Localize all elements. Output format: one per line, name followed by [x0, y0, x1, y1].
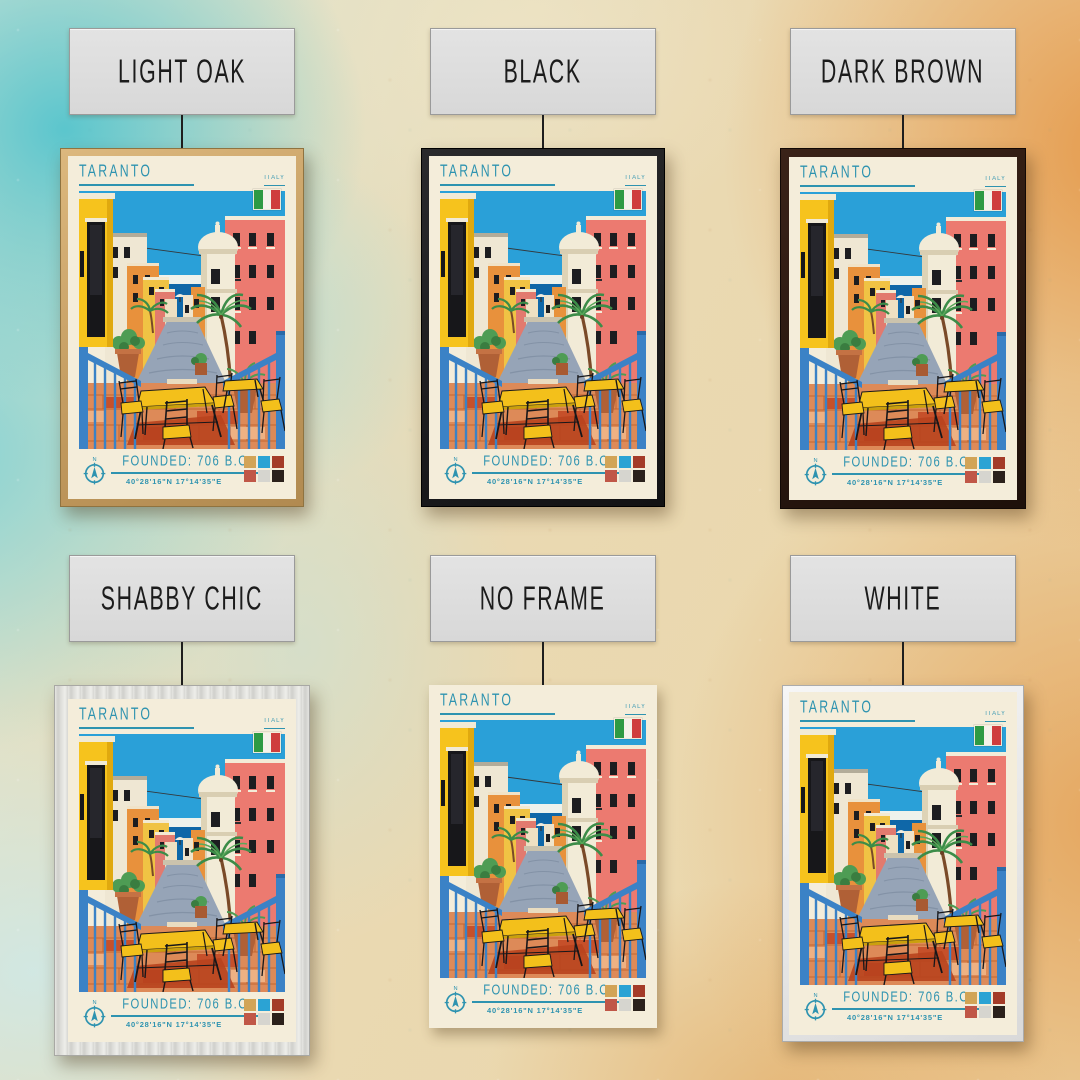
color-swatch	[619, 456, 631, 468]
poster-header: TARANTO ITALY	[79, 166, 285, 186]
poster-country: ITALY	[625, 175, 646, 181]
flag-stripe	[254, 190, 263, 209]
poster-country: ITALY	[985, 176, 1006, 182]
flag-stripe	[615, 719, 624, 738]
poster-title: TARANTO	[800, 696, 873, 716]
color-swatch	[633, 470, 645, 482]
color-swatch	[258, 470, 270, 482]
poster-frame: TARANTO ITALY	[54, 685, 310, 1056]
street-scene-illustration	[79, 734, 285, 992]
poster-header: TARANTO ITALY	[79, 709, 285, 729]
frame-option-text: DARK BROWN	[821, 52, 984, 92]
flag-stripe	[263, 190, 272, 209]
flag-stripe	[984, 191, 993, 210]
color-swatch	[993, 457, 1005, 469]
svg-text:N: N	[813, 458, 817, 464]
italy-flag-icon	[614, 718, 642, 739]
frame-option-text: LIGHT OAK	[118, 52, 246, 92]
poster-artwork	[79, 191, 285, 449]
poster-country: ITALY	[985, 711, 1006, 717]
frame-option-text: WHITE	[865, 579, 942, 619]
travel-poster: TARANTO ITALY	[68, 156, 296, 499]
color-swatch	[965, 471, 977, 483]
travel-poster: TARANTO ITALY	[68, 699, 296, 1042]
color-swatch	[965, 457, 977, 469]
founded-text: FOUNDED: 706 B.C.	[483, 981, 613, 998]
color-swatch	[272, 999, 284, 1011]
frame-option-text: BLACK	[504, 52, 582, 92]
color-swatch	[272, 456, 284, 468]
poster-footer: N FOUNDED: 706 B.C. 40°28'16"N 17°14'35"…	[79, 453, 285, 492]
coordinates-text: 40°28'16"N 17°14'35"E	[111, 477, 237, 486]
color-swatch	[272, 1013, 284, 1025]
flag-stripe	[992, 191, 1001, 210]
poster-country: ITALY	[264, 175, 285, 181]
frame-option-text: SHABBY CHIC	[101, 579, 263, 619]
variant-cell-shabby-chic: SHABBY CHIC TARANTO ITALY	[52, 555, 312, 1056]
color-swatch	[605, 470, 617, 482]
color-swatch	[258, 456, 270, 468]
hanger-line	[181, 115, 183, 148]
founded-text: FOUNDED: 706 B.C.	[843, 988, 973, 1005]
poster-title: TARANTO	[440, 689, 513, 709]
color-swatch	[979, 992, 991, 1004]
flag-stripe	[975, 726, 984, 745]
color-swatch	[619, 985, 631, 997]
compass-icon: N	[442, 984, 469, 1017]
color-swatch	[619, 999, 631, 1011]
compass-icon: N	[442, 455, 469, 488]
poster-country: ITALY	[625, 704, 646, 710]
variant-cell-dark-brown: DARK BROWN TARANTO ITALY	[773, 28, 1033, 509]
palette-swatches	[965, 992, 1005, 1018]
hanger-line	[542, 115, 544, 148]
color-swatch	[605, 999, 617, 1011]
palette-swatches	[244, 456, 284, 482]
travel-poster: TARANTO ITALY	[429, 156, 657, 499]
poster-frame: TARANTO ITALY	[429, 685, 657, 1028]
poster-title: TARANTO	[800, 161, 873, 181]
street-scene-illustration	[440, 720, 646, 978]
poster-footer: N FOUNDED: 706 B.C. 40°28'16"N 17°14'35"…	[440, 982, 646, 1021]
compass-icon: N	[802, 456, 829, 489]
svg-text:N: N	[92, 1000, 96, 1006]
color-swatch	[258, 1013, 270, 1025]
poster-frame: TARANTO ITALY	[60, 148, 304, 507]
svg-text:N: N	[813, 993, 817, 999]
poster-frame: TARANTO ITALY	[782, 685, 1024, 1042]
palette-swatches	[605, 985, 645, 1011]
founded-text: FOUNDED: 706 B.C.	[843, 453, 973, 470]
color-swatch	[965, 1006, 977, 1018]
poster-footer: N FOUNDED: 706 B.C. 40°28'16"N 17°14'35"…	[800, 454, 1006, 493]
color-swatch	[979, 471, 991, 483]
svg-text:N: N	[453, 457, 457, 463]
frame-option-label: SHABBY CHIC	[69, 555, 295, 642]
color-swatch	[633, 985, 645, 997]
italy-flag-icon	[253, 189, 281, 210]
poster-title: TARANTO	[79, 160, 152, 180]
compass-icon: N	[81, 455, 108, 488]
travel-poster: TARANTO ITALY	[789, 692, 1017, 1035]
italy-flag-icon	[974, 725, 1002, 746]
frame-option-label: NO FRAME	[430, 555, 656, 642]
flag-stripe	[992, 726, 1001, 745]
poster-artwork	[800, 727, 1006, 985]
palette-swatches	[244, 999, 284, 1025]
color-swatch	[605, 456, 617, 468]
poster-frame: TARANTO ITALY	[780, 148, 1026, 509]
founded-text: FOUNDED: 706 B.C.	[122, 995, 252, 1012]
founded-text: FOUNDED: 706 B.C.	[483, 452, 613, 469]
street-scene-illustration	[79, 191, 285, 449]
compass-icon: N	[802, 991, 829, 1024]
poster-artwork	[440, 191, 646, 449]
poster-title: TARANTO	[79, 703, 152, 723]
palette-swatches	[965, 457, 1005, 483]
color-swatch	[605, 985, 617, 997]
variant-cell-white: WHITE TARANTO ITALY	[773, 555, 1033, 1042]
street-scene-illustration	[800, 727, 1006, 985]
color-swatch	[979, 457, 991, 469]
color-swatch	[244, 999, 256, 1011]
frame-option-text: NO FRAME	[480, 579, 606, 619]
color-swatch	[272, 470, 284, 482]
frame-option-label: WHITE	[790, 555, 1016, 642]
flag-stripe	[632, 719, 641, 738]
frame-option-label: LIGHT OAK	[69, 28, 295, 115]
poster-title: TARANTO	[440, 160, 513, 180]
travel-poster: TARANTO ITALY	[429, 685, 657, 1028]
hanger-line	[181, 642, 183, 685]
palette-swatches	[605, 456, 645, 482]
flag-stripe	[615, 190, 624, 209]
flag-stripe	[271, 733, 280, 752]
color-swatch	[244, 456, 256, 468]
color-swatch	[244, 470, 256, 482]
poster-header: TARANTO ITALY	[440, 166, 646, 186]
color-swatch	[993, 471, 1005, 483]
coordinates-text: 40°28'16"N 17°14'35"E	[472, 1006, 598, 1015]
poster-footer: N FOUNDED: 706 B.C. 40°28'16"N 17°14'35"…	[800, 989, 1006, 1028]
coordinates-text: 40°28'16"N 17°14'35"E	[111, 1020, 237, 1029]
hanger-line	[902, 115, 904, 148]
flag-stripe	[263, 733, 272, 752]
poster-artwork	[440, 720, 646, 978]
color-swatch	[633, 456, 645, 468]
color-swatch	[993, 1006, 1005, 1018]
color-swatch	[633, 999, 645, 1011]
flag-stripe	[632, 190, 641, 209]
color-swatch	[979, 1006, 991, 1018]
svg-text:N: N	[453, 986, 457, 992]
flag-stripe	[984, 726, 993, 745]
coordinates-text: 40°28'16"N 17°14'35"E	[832, 478, 958, 487]
street-scene-illustration	[440, 191, 646, 449]
poster-country: ITALY	[264, 718, 285, 724]
flag-stripe	[624, 190, 633, 209]
svg-text:N: N	[92, 457, 96, 463]
poster-frame: TARANTO ITALY	[421, 148, 665, 507]
poster-header: TARANTO ITALY	[800, 702, 1006, 722]
travel-poster: TARANTO ITALY	[789, 157, 1017, 500]
color-swatch	[244, 1013, 256, 1025]
flag-stripe	[624, 719, 633, 738]
poster-artwork	[79, 734, 285, 992]
flag-stripe	[271, 190, 280, 209]
italy-flag-icon	[614, 189, 642, 210]
frame-option-label: DARK BROWN	[790, 28, 1016, 115]
color-swatch	[993, 992, 1005, 1004]
hanger-line	[542, 642, 544, 685]
color-swatch	[965, 992, 977, 1004]
color-swatch	[619, 470, 631, 482]
compass-icon: N	[81, 998, 108, 1031]
poster-footer: N FOUNDED: 706 B.C. 40°28'16"N 17°14'35"…	[440, 453, 646, 492]
street-scene-illustration	[800, 192, 1006, 450]
poster-header: TARANTO ITALY	[440, 695, 646, 715]
variant-cell-black: BLACK TARANTO ITALY	[413, 28, 673, 507]
italy-flag-icon	[974, 190, 1002, 211]
color-swatch	[258, 999, 270, 1011]
flag-stripe	[975, 191, 984, 210]
variant-cell-no-frame: NO FRAME TARANTO ITALY	[413, 555, 673, 1028]
product-mockup-canvas: LIGHT OAK TARANTO ITALY	[0, 0, 1080, 1080]
italy-flag-icon	[253, 732, 281, 753]
coordinates-text: 40°28'16"N 17°14'35"E	[472, 477, 598, 486]
hanger-line	[902, 642, 904, 685]
poster-header: TARANTO ITALY	[800, 167, 1006, 187]
poster-footer: N FOUNDED: 706 B.C. 40°28'16"N 17°14'35"…	[79, 996, 285, 1035]
founded-text: FOUNDED: 706 B.C.	[122, 452, 252, 469]
poster-artwork	[800, 192, 1006, 450]
coordinates-text: 40°28'16"N 17°14'35"E	[832, 1013, 958, 1022]
flag-stripe	[254, 733, 263, 752]
variant-cell-light-oak: LIGHT OAK TARANTO ITALY	[52, 28, 312, 507]
frame-option-label: BLACK	[430, 28, 656, 115]
